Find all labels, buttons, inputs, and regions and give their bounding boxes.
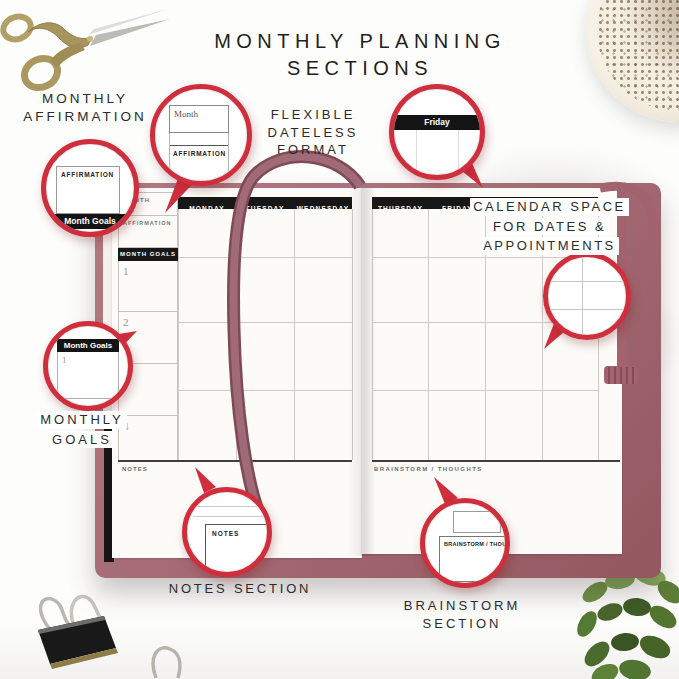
label-line: GOALS — [49, 431, 115, 449]
label-line: NOTES SECTION — [120, 580, 360, 598]
label-notes-section: NOTES SECTION — [120, 580, 360, 598]
notes-zoom-callout: NOTES — [182, 487, 272, 577]
label-line: MONTHLY — [10, 90, 160, 108]
grid-line — [416, 130, 417, 175]
zoom-friday-bar: Friday — [390, 115, 484, 130]
grid-line — [193, 516, 263, 517]
zoom-mini-box — [453, 511, 501, 533]
label-line: APPOINTMENTS — [480, 237, 619, 255]
grid-line — [458, 130, 459, 175]
label-line: AFFIRMATION — [10, 108, 160, 126]
label-line: FOR DATES & — [490, 218, 609, 236]
grid-line — [548, 281, 626, 282]
grid-line — [193, 506, 263, 507]
label-line: FLEXIBLE — [233, 106, 393, 124]
zoom-affirmation-box: AFFIRMATION — [56, 166, 120, 214]
grid-line — [548, 309, 626, 310]
grid-line — [582, 257, 583, 335]
label-calendar-space: CALENDAR SPACE FOR DATES & APPOINTMENTS — [462, 197, 637, 256]
calendar-grid-zoom-callout — [543, 252, 631, 340]
label-line: BRAINSTORM — [392, 597, 532, 615]
product-infographic: MONTHLY PLANNING SECTIONS MONTH AFFIRMAT… — [0, 0, 679, 679]
brainstorm-zoom-callout: BRAINSTORM / THOUGH — [420, 498, 510, 588]
month-goals-zoom-callout: Month Goals 1 — [43, 321, 133, 411]
affirmation-goals-zoom-callout: AFFIRMATION Month Goals — [41, 139, 139, 237]
zoom-affirmation-header: AFFIRMATION — [170, 145, 228, 157]
label-flexible-dateless-format: FLEXIBLE DATELESS FORMAT — [233, 106, 393, 159]
zoom-month-goals-bar: Month Goals — [57, 339, 119, 352]
zoom-month-box: Month — [169, 105, 229, 133]
label-line: SECTION — [392, 615, 532, 633]
label-line: CALENDAR SPACE — [470, 198, 629, 216]
friday-zoom-callout: Friday — [389, 84, 485, 180]
label-monthly-goals: MONTHLY GOALS — [22, 410, 142, 449]
zoom-goal-number: 1 — [62, 355, 67, 365]
label-brainstorm-section: BRAINSTORM SECTION — [392, 597, 532, 632]
zoom-card: Month Goals 1 — [57, 339, 119, 399]
label-line: MONTHLY — [37, 411, 127, 429]
label-line: DATELESS FORMAT — [233, 124, 393, 159]
label-monthly-affirmation: MONTHLY AFFIRMATION — [10, 90, 160, 126]
zoom-card: Month AFFIRMATION — [169, 105, 229, 183]
